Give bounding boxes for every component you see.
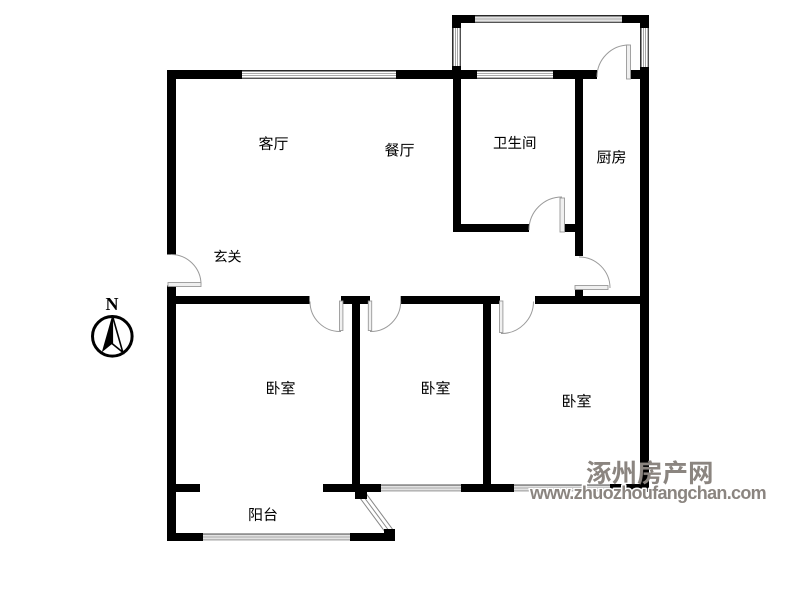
- svg-text:www.zhuozhoufangchan.com: www.zhuozhoufangchan.com: [529, 483, 766, 503]
- svg-text:N: N: [106, 294, 119, 314]
